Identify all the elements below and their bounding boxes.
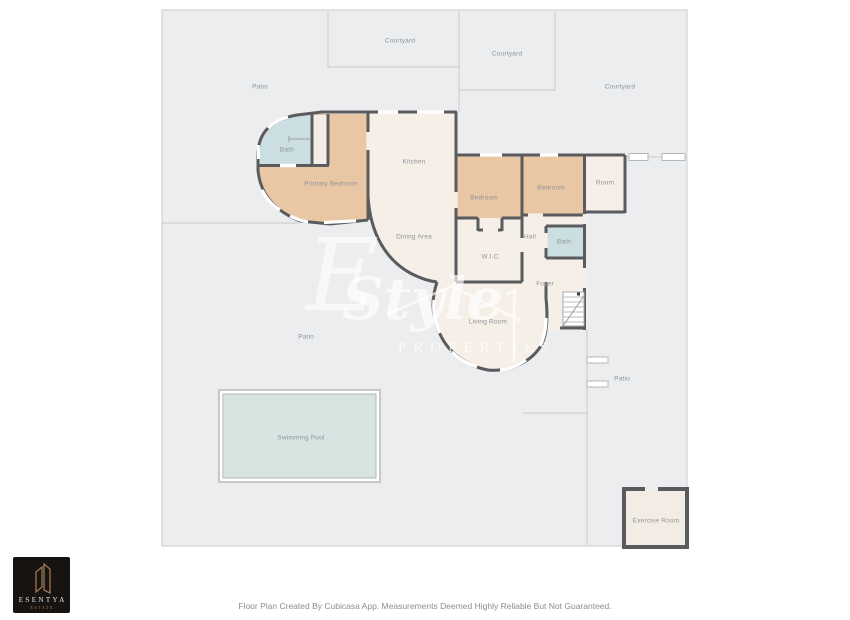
room-label-wic: W.I.C. — [482, 254, 501, 261]
room-label-courtyard-right: Courtyard — [605, 84, 635, 91]
stairs — [563, 292, 584, 326]
room-label-patio-top-left: Patio — [252, 84, 268, 91]
room-label-dining-area: Dining Area — [396, 234, 432, 241]
footer-disclaimer: Floor Plan Created By Cubicasa App. Meas… — [0, 601, 850, 611]
room-shape-bedroom-1 — [456, 155, 522, 218]
room-shape-wic — [456, 218, 522, 282]
room-label-foyer: Foyer — [536, 281, 554, 288]
room-label-bath-2: Bath — [557, 239, 571, 246]
room-label-primary-bedroom: Primary Bedroom — [304, 181, 358, 188]
room-label-bedroom-2: Bedroom — [537, 185, 565, 192]
room-label-room: Room — [596, 180, 614, 187]
room-label-living-room: Living Room — [469, 319, 507, 326]
floor-plan-page: E Style PROPERTIES Courtyard Courtyard P… — [0, 0, 850, 620]
room-label-courtyard-top: Courtyard — [385, 38, 415, 45]
room-label-swimming-pool: Swimming Pool — [277, 435, 324, 442]
room-label-patio-right: Patio — [614, 376, 630, 383]
room-label-kitchen: Kitchen — [402, 159, 425, 166]
room-label-exercise-room: Exercise Room — [633, 518, 680, 525]
building-icon — [22, 560, 62, 596]
room-label-bath-1: Bath — [280, 147, 294, 154]
room-label-bedroom-1: Bedroom — [470, 195, 498, 202]
room-label-courtyard-top-right: Courtyard — [492, 51, 522, 58]
floor-plan-canvas — [0, 0, 850, 620]
room-shape-closet — [312, 115, 328, 165]
room-label-patio-left: Patio — [298, 334, 314, 341]
room-label-hall: Hall — [524, 234, 536, 241]
